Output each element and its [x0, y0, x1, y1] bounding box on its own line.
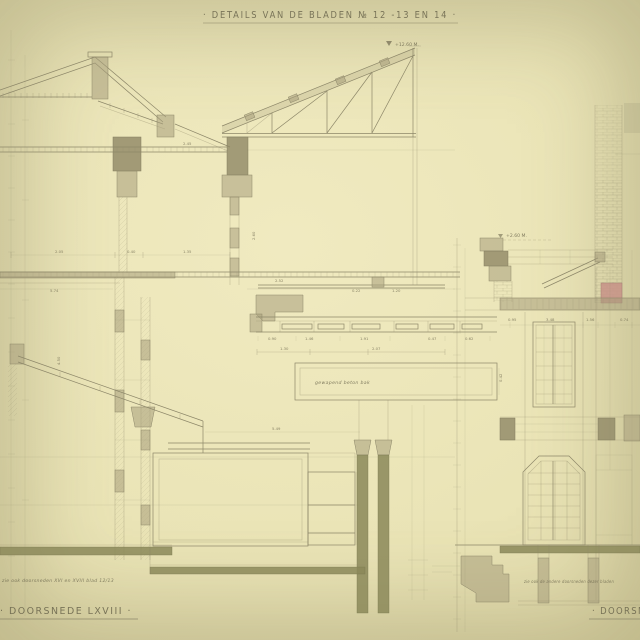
lower-window	[523, 456, 585, 545]
parapet: +2.60 M.	[480, 233, 552, 302]
dim-label: 1.46	[305, 336, 314, 341]
dim-label: 2.05	[55, 249, 64, 254]
dim-label: 1.56	[586, 317, 595, 322]
right-section-drawing: +2.60 M.	[453, 103, 640, 632]
masonry-piers	[113, 137, 417, 285]
dim-label: 5.49	[272, 426, 281, 431]
right-caption: · DOORSNEDE	[592, 606, 640, 617]
right-dim-row: 0.95 3.48 1.56 0.74	[500, 317, 640, 328]
floor-band	[465, 298, 640, 310]
upper-window	[533, 322, 575, 407]
level-mark-label: +2.60 M.	[506, 233, 527, 239]
drawing-canvas: · DETAILS VAN DE BLADEN № 12 -13 EN 14 ·	[0, 0, 640, 640]
dim-label: 1.30	[280, 346, 289, 351]
title-text: · DETAILS VAN DE BLADEN № 12 -13 EN 14 ·	[203, 10, 457, 21]
annex-roof	[8, 344, 203, 453]
gable-roof	[0, 52, 230, 151]
dim-label: 2.52	[275, 278, 284, 283]
dim-label: 0.42	[498, 373, 503, 382]
left-captions: zie ook doorsneden XVI en XVIII blad 12/…	[0, 578, 138, 619]
sheet-title: · DETAILS VAN DE BLADEN № 12 -13 EN 14 ·	[203, 10, 458, 23]
dim-label: 0.95	[508, 317, 517, 322]
right-recess	[596, 455, 632, 545]
dim-label: 1.91	[360, 336, 369, 341]
ground-line	[0, 545, 365, 574]
level-mark-label: +12.60 M.	[395, 42, 419, 48]
basement-walls	[354, 400, 428, 613]
tank-detail	[153, 443, 310, 546]
dim-label: 1.35	[183, 249, 192, 254]
panel-detail: gewapend beton bak 0.42	[295, 363, 503, 400]
dim-label: 0.40	[127, 249, 136, 254]
stairs-detail	[308, 453, 357, 545]
level-marker-truss: +12.60 M.	[386, 41, 419, 48]
right-lintel-band	[500, 415, 640, 441]
brick-pillar	[595, 103, 640, 303]
cavity-wall	[115, 277, 155, 560]
footing-detail	[432, 556, 509, 602]
dim-label: 2.07	[372, 346, 381, 351]
dim-label: 0.47	[428, 336, 437, 341]
dim-label: 5.74	[50, 288, 59, 293]
drawing-sheet: · DETAILS VAN DE BLADEN № 12 -13 EN 14 ·	[0, 0, 640, 640]
dim-label: 2.60	[251, 231, 256, 240]
dim-label: 0.22	[352, 288, 361, 293]
left-caption: · DOORSNEDE LXVIII ·	[0, 606, 132, 617]
dim-label: 2.45	[183, 141, 192, 146]
dim-label: 3.48	[546, 317, 555, 322]
dim-label: 0.62	[465, 336, 474, 341]
left-section-drawing: +12.60 M.	[0, 30, 509, 619]
right-note: zie ook de andere doorsneden dezer blade…	[523, 579, 614, 585]
left-note: zie ook doorsneden XVI en XVIII blad 12/…	[1, 578, 114, 584]
dim-label: 0.74	[620, 317, 629, 322]
dim-label: 0.90	[268, 336, 277, 341]
lintel-detail: 2.52 0.90 1.46 1.91 0.47 0.62	[250, 277, 497, 341]
panel-inscription: gewapend beton bak	[315, 380, 370, 386]
dim-label: 1.20	[392, 288, 401, 293]
dim-label: 4.50	[56, 356, 61, 365]
roof-truss	[222, 46, 421, 137]
